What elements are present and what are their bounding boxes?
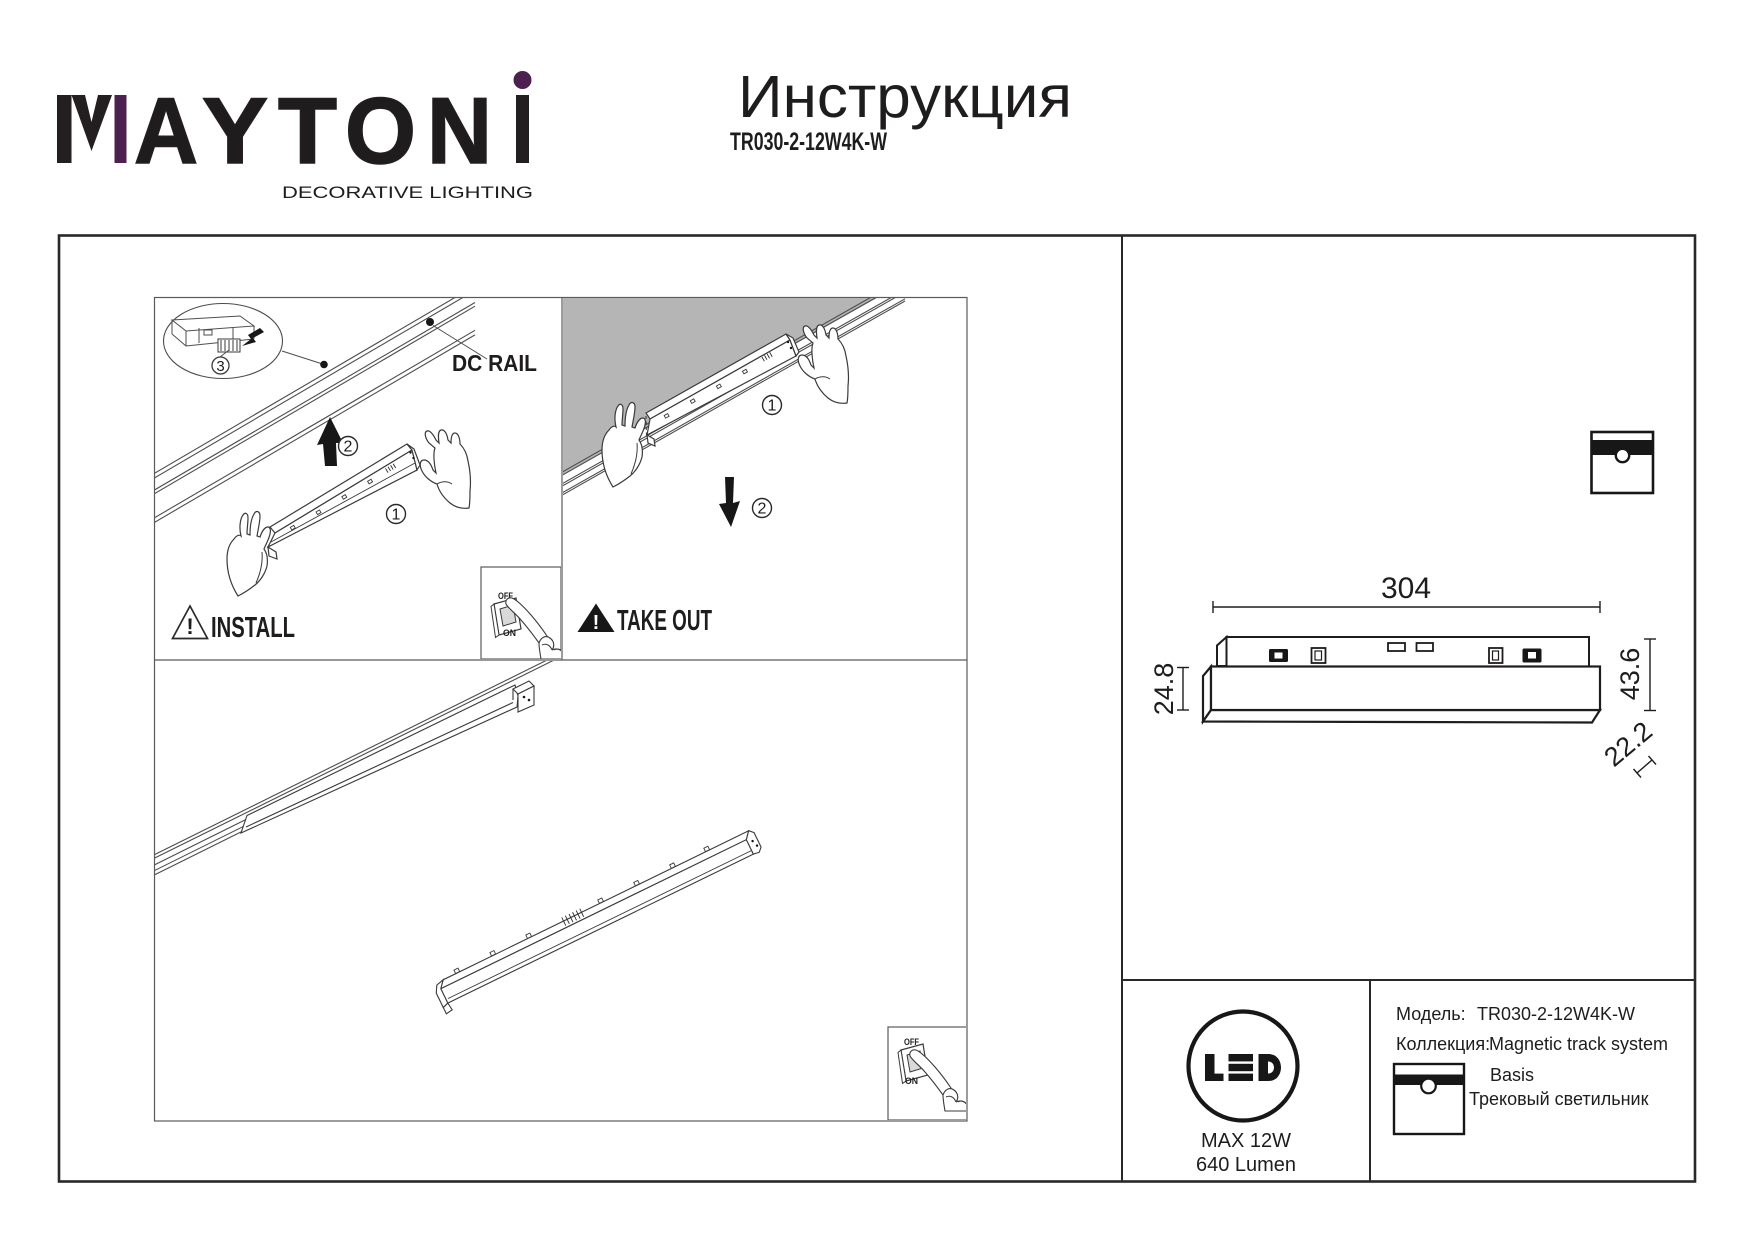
- svg-text:T: T: [278, 78, 337, 183]
- svg-text:3: 3: [216, 358, 224, 375]
- svg-text:DC RAIL: DC RAIL: [452, 350, 537, 376]
- svg-text:A: A: [134, 78, 198, 183]
- svg-text:43.6: 43.6: [1615, 648, 1645, 701]
- svg-text:!: !: [593, 612, 600, 634]
- svg-text:1: 1: [768, 398, 777, 415]
- svg-text:Трековый светильник: Трековый светильник: [1469, 1089, 1649, 1109]
- svg-text:640 Lumen: 640 Lumen: [1196, 1154, 1296, 1176]
- svg-text:2: 2: [344, 439, 353, 456]
- svg-text:Инструкция: Инструкция: [738, 64, 1072, 130]
- svg-text:O: O: [345, 78, 416, 183]
- svg-text:!: !: [186, 614, 193, 639]
- svg-text:INSTALL: INSTALL: [211, 612, 295, 644]
- svg-text:Коллекция:: Коллекция:: [1396, 1034, 1490, 1054]
- svg-text:304: 304: [1381, 572, 1431, 605]
- svg-text:24.8: 24.8: [1149, 663, 1179, 716]
- svg-text:Basis: Basis: [1490, 1065, 1534, 1085]
- svg-text:TR030-2-12W4K-W: TR030-2-12W4K-W: [730, 128, 887, 156]
- svg-text:2: 2: [758, 501, 767, 518]
- svg-text:ON: ON: [905, 1076, 918, 1087]
- svg-text:Magnetic track system: Magnetic track system: [1489, 1034, 1668, 1054]
- svg-text:ON: ON: [503, 628, 516, 639]
- svg-text:Модель:: Модель:: [1396, 1004, 1466, 1024]
- svg-text:N: N: [427, 78, 492, 183]
- svg-text:TAKE OUT: TAKE OUT: [617, 605, 712, 637]
- svg-text:DECORATIVE LIGHTING: DECORATIVE LIGHTING: [282, 183, 533, 202]
- svg-text:TR030-2-12W4K-W: TR030-2-12W4K-W: [1477, 1004, 1635, 1024]
- svg-text:MAX 12W: MAX 12W: [1201, 1130, 1291, 1152]
- svg-text:1: 1: [392, 507, 401, 524]
- svg-text:Y: Y: [202, 78, 268, 183]
